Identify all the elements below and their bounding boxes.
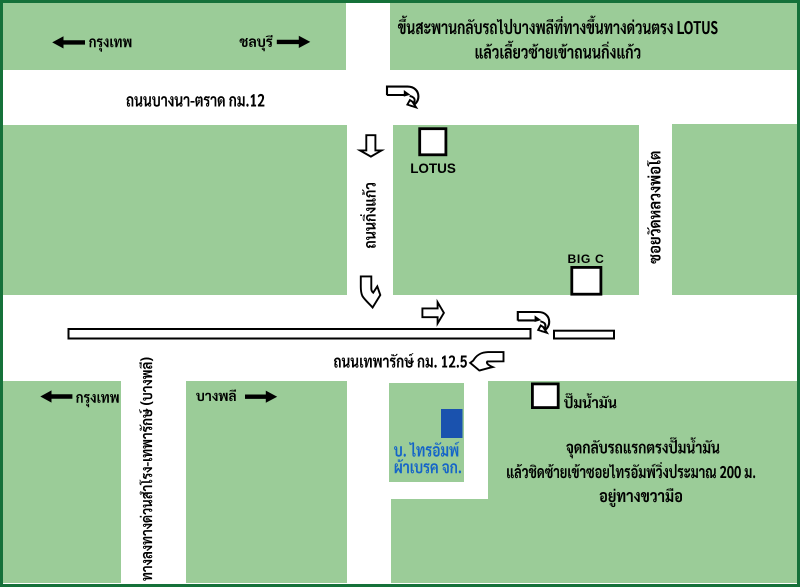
svg-text:LOTUS: LOTUS bbox=[410, 161, 456, 176]
svg-text:BIG C: BIG C bbox=[568, 252, 605, 266]
